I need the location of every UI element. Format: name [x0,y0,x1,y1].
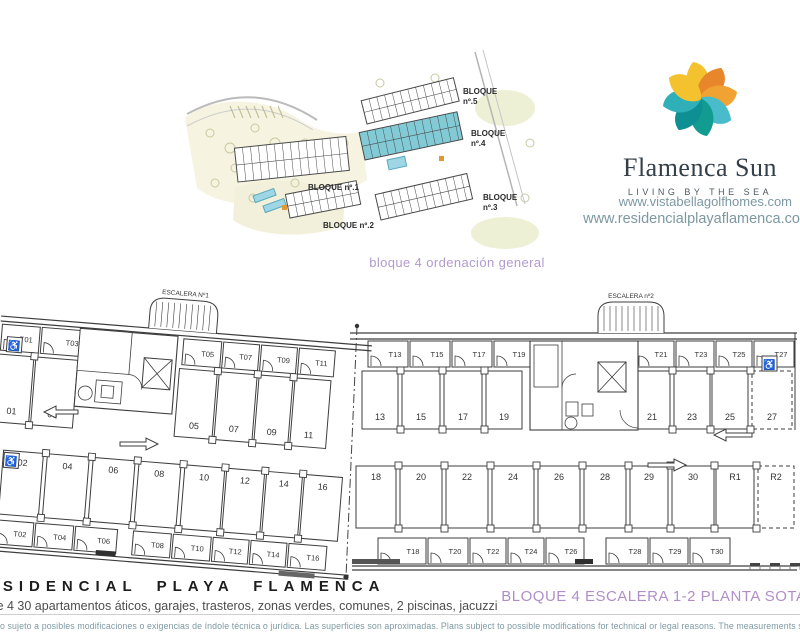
column-post [753,525,760,532]
parking-stall-number: 16 [317,482,328,493]
parking-stall-number: 15 [416,412,426,422]
column-post [290,373,298,381]
trastero-number: T24 [525,547,538,556]
trastero-number: T14 [266,550,280,560]
trastero-number: T30 [711,547,724,556]
parking-stall-number: 05 [189,420,200,431]
trastero-number: T08 [151,540,165,550]
column-post [441,462,448,469]
column-post [284,442,292,450]
column-post [579,462,586,469]
parking-stall-number: 25 [725,412,735,422]
column-post [439,367,446,374]
column-post [533,525,540,532]
scale-segment [770,563,780,567]
column-post [667,525,674,532]
fixture [101,385,114,398]
parking-stall-number: 29 [644,472,654,482]
trastero-number: T15 [431,350,444,359]
parking-stall-number: 12 [240,475,251,486]
parking-stall-number: 01 [6,406,17,417]
trastero-number: T07 [239,352,253,362]
parking-stall-number: 04 [62,461,73,472]
column-post [395,525,402,532]
trastero-number: T16 [306,553,320,563]
parking-stall-number: 26 [554,472,564,482]
parking-stall-number: 23 [687,412,697,422]
section-line [346,326,357,577]
trastero-number: T20 [449,547,462,556]
wall-joint [352,559,400,564]
parking-stall-number: R1 [729,472,741,482]
accessible-icon: ♿ [5,454,18,468]
left-bottom-group: 0204060810121416♿T02T04T06T08T10T12T14T1… [0,446,357,581]
utility-room [534,345,558,387]
parking-stall-number: 27 [767,412,777,422]
column-post [397,426,404,433]
trastero-number: T05 [201,349,215,359]
trastero-number: T18 [407,547,420,556]
trastero-number: T13 [389,350,402,359]
column-post [222,464,230,472]
accessible-icon: ♿ [8,339,21,353]
fixture [582,404,593,416]
trastero-number: T02 [13,529,27,539]
section-line-dot [355,324,359,328]
column-post [625,462,632,469]
parking-stall-number: 20 [416,472,426,482]
floor-plan: T13T15T17T19T21T23T25T271315171921232527… [0,0,800,640]
footer-divider [0,614,800,615]
parking-stall-number: 06 [108,465,119,476]
column-post [180,460,188,468]
column-post [214,367,222,375]
trastero-number: T06 [97,536,111,546]
column-post [441,525,448,532]
column-post [42,449,50,457]
column-post [487,462,494,469]
parking-stall-number: 17 [458,412,468,422]
column-post [395,462,402,469]
trastero-number: T17 [473,350,486,359]
column-post [533,462,540,469]
parking-stall [0,354,34,425]
parking-stall-number: R2 [770,472,782,482]
column-post [711,525,718,532]
parking-stall-number: 09 [266,427,277,438]
trastero-number: T29 [669,547,682,556]
project-title: RESIDENCIAL PLAYA FLAMENCA [0,578,385,595]
column-post [753,462,760,469]
parking-stall-number: 08 [154,468,165,479]
column-post [439,426,446,433]
column-post [481,367,488,374]
staircase [598,302,664,333]
accessible-icon: ♿ [763,358,775,371]
column-post [747,426,754,433]
parking-stall-number: 18 [371,472,381,482]
left-top-group: T01T03T05T07T09T11♿010305070911ESCALERA … [0,276,375,455]
parking-stall-number: 13 [375,412,385,422]
column-post [707,426,714,433]
column-post [37,514,45,522]
trastero-number: T25 [733,350,746,359]
column-post [579,525,586,532]
column-post [487,525,494,532]
column-post [256,532,264,540]
column-post [625,525,632,532]
parking-stall-number: 22 [462,472,472,482]
trastero-number: T11 [315,358,328,368]
parking-stall-number: 14 [278,478,289,489]
column-post [175,525,183,533]
column-post [299,470,307,478]
column-post [481,426,488,433]
trastero-number: T04 [53,533,67,543]
fixture [566,402,578,416]
trastero-number: T28 [629,547,642,556]
column-post [248,439,256,447]
trastero-number: T26 [565,547,578,556]
sheet-label: BLOQUE 4 ESCALERA 1-2 PLANTA SOTANO [501,588,800,605]
trastero-number: T10 [191,544,205,554]
column-post [209,436,217,444]
utility-room [77,328,132,374]
column-post [134,457,142,465]
trastero-number: T23 [695,350,708,359]
column-post [711,462,718,469]
trastero-number: T22 [487,547,500,556]
column-post [669,367,676,374]
column-post [88,453,96,461]
trastero-number: T09 [277,355,291,365]
wall-joint [575,559,593,564]
trastero-number: T21 [655,350,668,359]
parking-stall-number: 21 [647,412,657,422]
column-post [747,367,754,374]
column-post [397,367,404,374]
fixture [565,417,577,429]
parking-stall-number: 30 [688,472,698,482]
scale-segment [750,563,760,567]
column-post [707,367,714,374]
scale-segment [790,563,800,567]
column-post [31,353,39,361]
direction-arrow-right [120,438,158,450]
column-post [216,529,224,537]
column-post [83,518,91,526]
column-post [254,371,262,379]
plan-sheet-page: { "site_plan": { "caption": "bloque 4 or… [0,0,800,640]
trastero-number: T19 [513,350,526,359]
column-post [129,522,137,530]
column-post [262,467,270,475]
trastero-number: T12 [228,547,242,557]
trastero-room [606,538,648,564]
parking-stall-number: 11 [304,430,314,441]
column-post [25,421,33,429]
parking-stall-number: 24 [508,472,518,482]
scale-bar [746,558,800,574]
parking-stall-number: 19 [499,412,509,422]
stair-label: ESCALERA nº2 [608,293,654,300]
staircase [149,297,219,333]
trastero-number: T03 [65,338,79,348]
parking-stall-number: 07 [228,424,239,435]
column-post [294,535,302,543]
disclaimer-text: Plano sujeto a posibles modificaciones o… [0,621,800,631]
parking-stall-number: 10 [199,472,210,483]
column-post [669,426,676,433]
direction-arrow-left [714,429,752,441]
parking-stall-number: 28 [600,472,610,482]
project-subtitle: bloque 4 30 apartamentos áticos, garajes… [0,599,498,613]
